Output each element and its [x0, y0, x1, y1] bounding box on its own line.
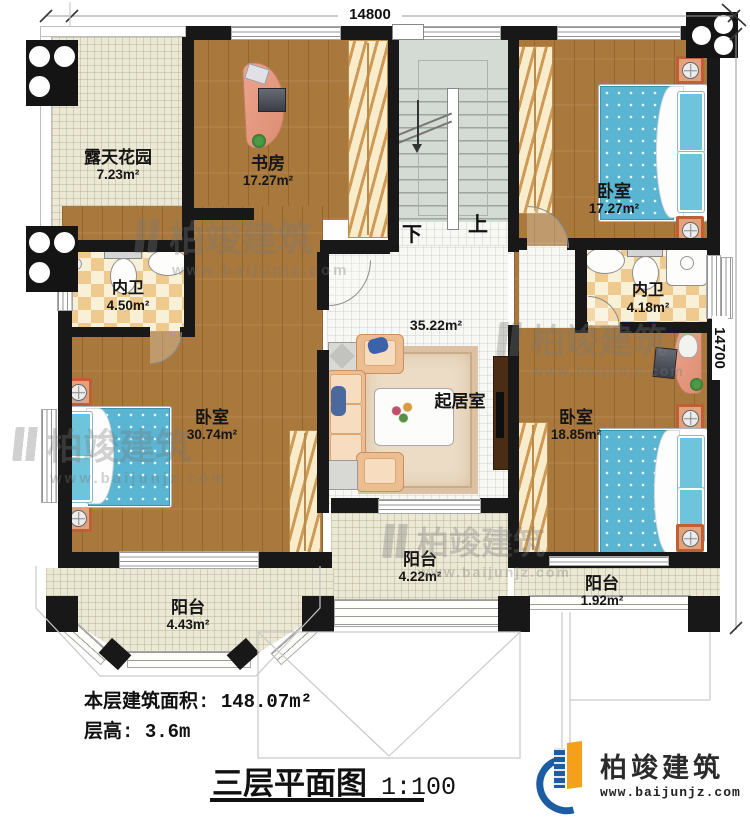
- wall: [480, 498, 508, 513]
- company-name: 柏竣建筑: [600, 746, 741, 785]
- wall: [184, 240, 195, 337]
- hallway: [519, 246, 575, 328]
- floor-area-label: 本层建筑面积:: [84, 691, 209, 713]
- room-label-study: 书房 17.27m²: [212, 154, 324, 188]
- wall: [508, 36, 519, 252]
- balcony-pier: [498, 596, 530, 632]
- column-marker: [26, 40, 78, 106]
- wall: [58, 552, 120, 568]
- bed-pillow: [678, 436, 704, 490]
- company-logo-text: 柏竣建筑 www.baijunjz.com: [600, 746, 741, 800]
- wall: [567, 238, 707, 250]
- room-label-balcony-center: 阳台 4.22m²: [372, 550, 468, 584]
- stair-direction-line: [417, 100, 419, 146]
- window: [418, 27, 500, 39]
- wall: [320, 240, 390, 254]
- floor-area-line: 本层建筑面积: 148.07m²: [84, 686, 312, 713]
- stairs-down-label: 下: [402, 218, 422, 247]
- wall: [317, 350, 329, 513]
- balcony-pier: [302, 596, 334, 632]
- wall: [58, 240, 194, 252]
- person-figure: [331, 386, 346, 416]
- plan-title: 三层平面图1:100: [212, 758, 456, 803]
- side-table: [328, 460, 358, 490]
- room-label-bath-right: 内卫 4.18m²: [600, 282, 696, 315]
- nightstand: [676, 524, 704, 552]
- sink: [585, 247, 625, 274]
- wall: [620, 322, 720, 333]
- room-label-balcony-left: 阳台 4.43m²: [140, 598, 236, 632]
- company-logo-icon: [534, 740, 594, 804]
- chair: [678, 334, 698, 358]
- wall: [388, 36, 399, 252]
- column-marker: [26, 226, 78, 292]
- plant: [252, 134, 266, 148]
- room-label-bath-left: 内卫 4.50m²: [82, 280, 174, 313]
- balcony-pier: [688, 596, 720, 632]
- room-label-bedroom-top-right: 卧室 17.27m²: [558, 182, 670, 216]
- wardrobe: [517, 46, 553, 214]
- floor-plan: 14800 14700 露天花园 7.23m² 书房 17.27m² 卧室 17…: [0, 0, 750, 818]
- computer-monitor: [652, 347, 677, 379]
- room-label-garden: 露天花园 7.23m²: [52, 148, 184, 182]
- sliding-door: [379, 500, 480, 513]
- balcony-railing: [335, 600, 498, 626]
- window: [558, 27, 680, 39]
- bed-pillow: [678, 152, 704, 212]
- computer-monitor: [258, 88, 286, 112]
- wall: [182, 208, 254, 220]
- room-label-bedroom-left: 卧室 30.74m²: [156, 408, 268, 442]
- column-marker: [686, 12, 738, 58]
- wall: [317, 252, 329, 310]
- title-underline: [210, 798, 424, 802]
- room-label-balcony-right: 阳台 1.92m²: [554, 574, 650, 608]
- stair-railing: [447, 88, 459, 230]
- dimension-top: 14800: [338, 6, 402, 22]
- floor-height-label: 层高:: [84, 721, 133, 743]
- stairs-up-label: 上: [468, 208, 488, 237]
- garden-parapet: [40, 26, 186, 37]
- window-sill: [721, 258, 732, 318]
- window: [550, 557, 668, 565]
- wardrobe: [348, 40, 388, 238]
- plan-title-text: 三层平面图: [212, 766, 367, 801]
- armchair-cushion: [364, 458, 396, 484]
- wall: [331, 498, 379, 513]
- company-url: www.baijunjz.com: [600, 785, 741, 800]
- window: [232, 27, 340, 39]
- floor-height-line: 层高: 3.6m: [84, 716, 190, 743]
- balcony-pier: [46, 596, 78, 632]
- shower-drain: [680, 256, 694, 270]
- room-name: 露天花园: [52, 148, 184, 167]
- window-sill: [42, 410, 56, 502]
- wall: [258, 552, 332, 568]
- living-name-label: 起居室: [408, 392, 512, 411]
- floor-area-value: 148.07m²: [221, 691, 312, 713]
- wall: [575, 322, 588, 333]
- dimension-right: 14700: [712, 316, 728, 380]
- room-area: 7.23m²: [52, 167, 184, 182]
- floor-height-value: 3.6m: [145, 721, 191, 743]
- watermark-logo-icon: [12, 427, 42, 461]
- living-area-label: 35.22m²: [382, 318, 490, 334]
- sink: [148, 249, 188, 276]
- nightstand: [676, 56, 704, 84]
- stair-arrow-icon: [412, 144, 422, 153]
- wall: [514, 238, 527, 250]
- plant: [690, 378, 703, 391]
- wall: [58, 327, 150, 337]
- wall: [575, 250, 587, 330]
- wall: [180, 327, 195, 337]
- duct-box: [392, 24, 424, 40]
- window: [707, 256, 720, 318]
- room-label-bedroom-right: 卧室 18.85m²: [520, 408, 632, 442]
- sliding-door: [120, 552, 258, 568]
- bed-pillow: [678, 92, 704, 152]
- wall: [508, 325, 519, 568]
